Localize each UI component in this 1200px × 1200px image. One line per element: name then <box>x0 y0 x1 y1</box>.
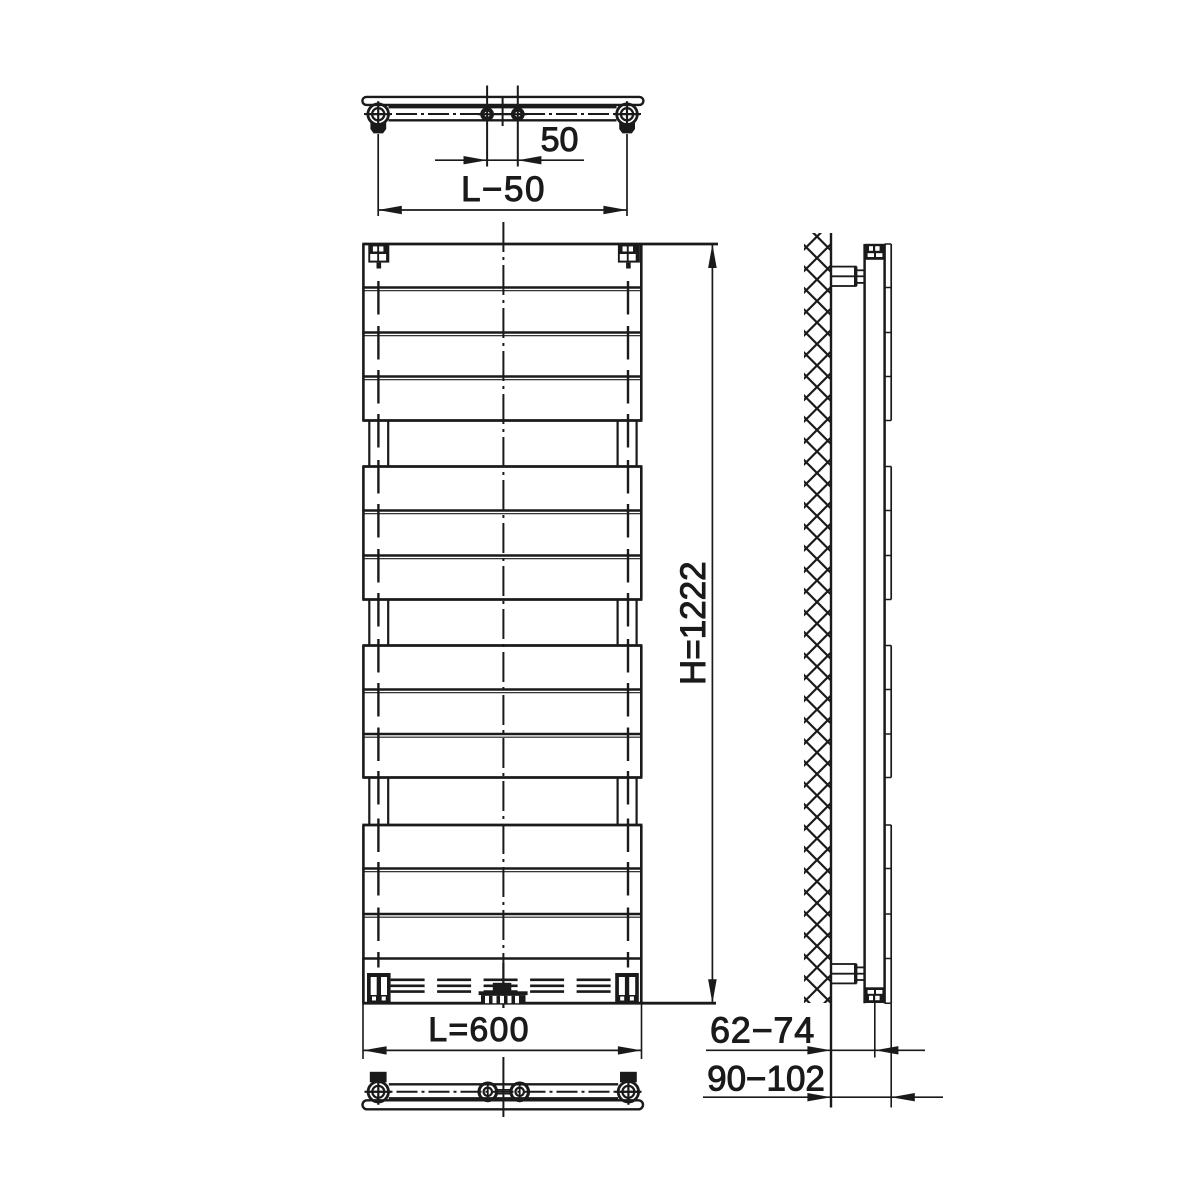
svg-text:62−74: 62−74 <box>710 1010 815 1051</box>
svg-text:50: 50 <box>541 121 579 159</box>
svg-text:L−50: L−50 <box>461 170 546 209</box>
svg-text:H=1222: H=1222 <box>674 561 713 685</box>
svg-text:L=600: L=600 <box>428 1011 530 1049</box>
svg-text:90−102: 90−102 <box>707 1060 825 1099</box>
